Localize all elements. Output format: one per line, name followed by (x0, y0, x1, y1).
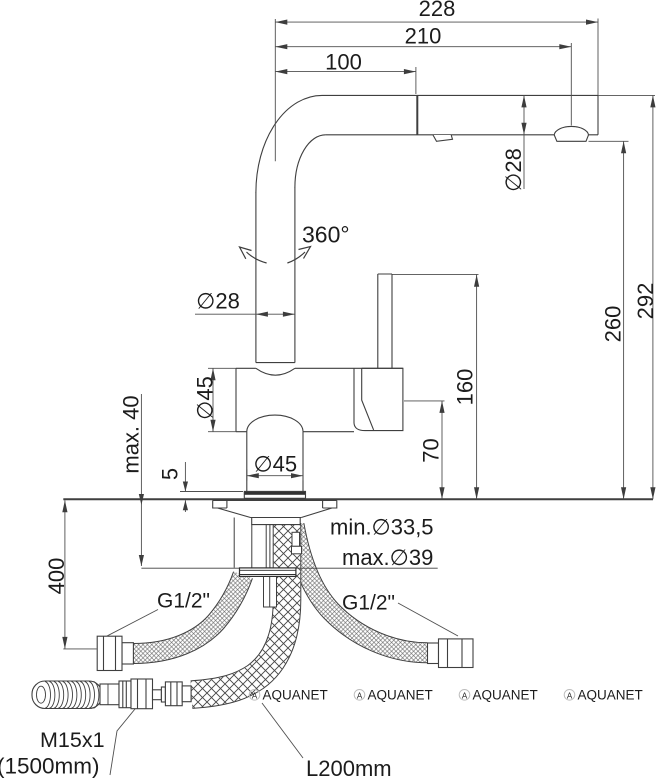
svg-text:G1/2": G1/2" (342, 592, 395, 615)
svg-text:228: 228 (419, 0, 456, 21)
svg-text:AQUANET: AQUANET (368, 688, 433, 703)
svg-text:160: 160 (453, 369, 478, 406)
svg-text:AQUANET: AQUANET (578, 688, 643, 703)
svg-text:L200mm: L200mm (306, 756, 392, 781)
svg-text:5: 5 (158, 468, 183, 480)
svg-text:A: A (567, 691, 573, 700)
svg-text:∅45: ∅45 (253, 452, 297, 477)
svg-text:292: 292 (633, 283, 656, 320)
svg-text:∅28: ∅28 (196, 289, 240, 314)
svg-text:A: A (357, 691, 363, 700)
svg-text:∅45: ∅45 (193, 376, 218, 420)
svg-text:max.∅39: max.∅39 (342, 545, 433, 570)
svg-text:70: 70 (419, 438, 444, 462)
svg-text:360°: 360° (302, 222, 350, 248)
svg-text:min.∅33,5: min.∅33,5 (330, 515, 434, 540)
svg-text:∅28: ∅28 (501, 148, 526, 192)
svg-text:A: A (252, 691, 258, 700)
svg-text:100: 100 (325, 50, 362, 75)
svg-text:M15x1: M15x1 (40, 728, 105, 752)
svg-text:AQUANET: AQUANET (473, 688, 538, 703)
svg-text:260: 260 (601, 306, 626, 343)
svg-text:G1/2": G1/2" (157, 590, 210, 613)
svg-text:max. 40: max. 40 (119, 395, 144, 473)
svg-text:AQUANET: AQUANET (263, 688, 328, 703)
svg-text:A: A (462, 691, 468, 700)
svg-text:210: 210 (405, 24, 442, 49)
svg-text:400: 400 (44, 558, 69, 595)
svg-text:(1500mm): (1500mm) (0, 754, 100, 779)
